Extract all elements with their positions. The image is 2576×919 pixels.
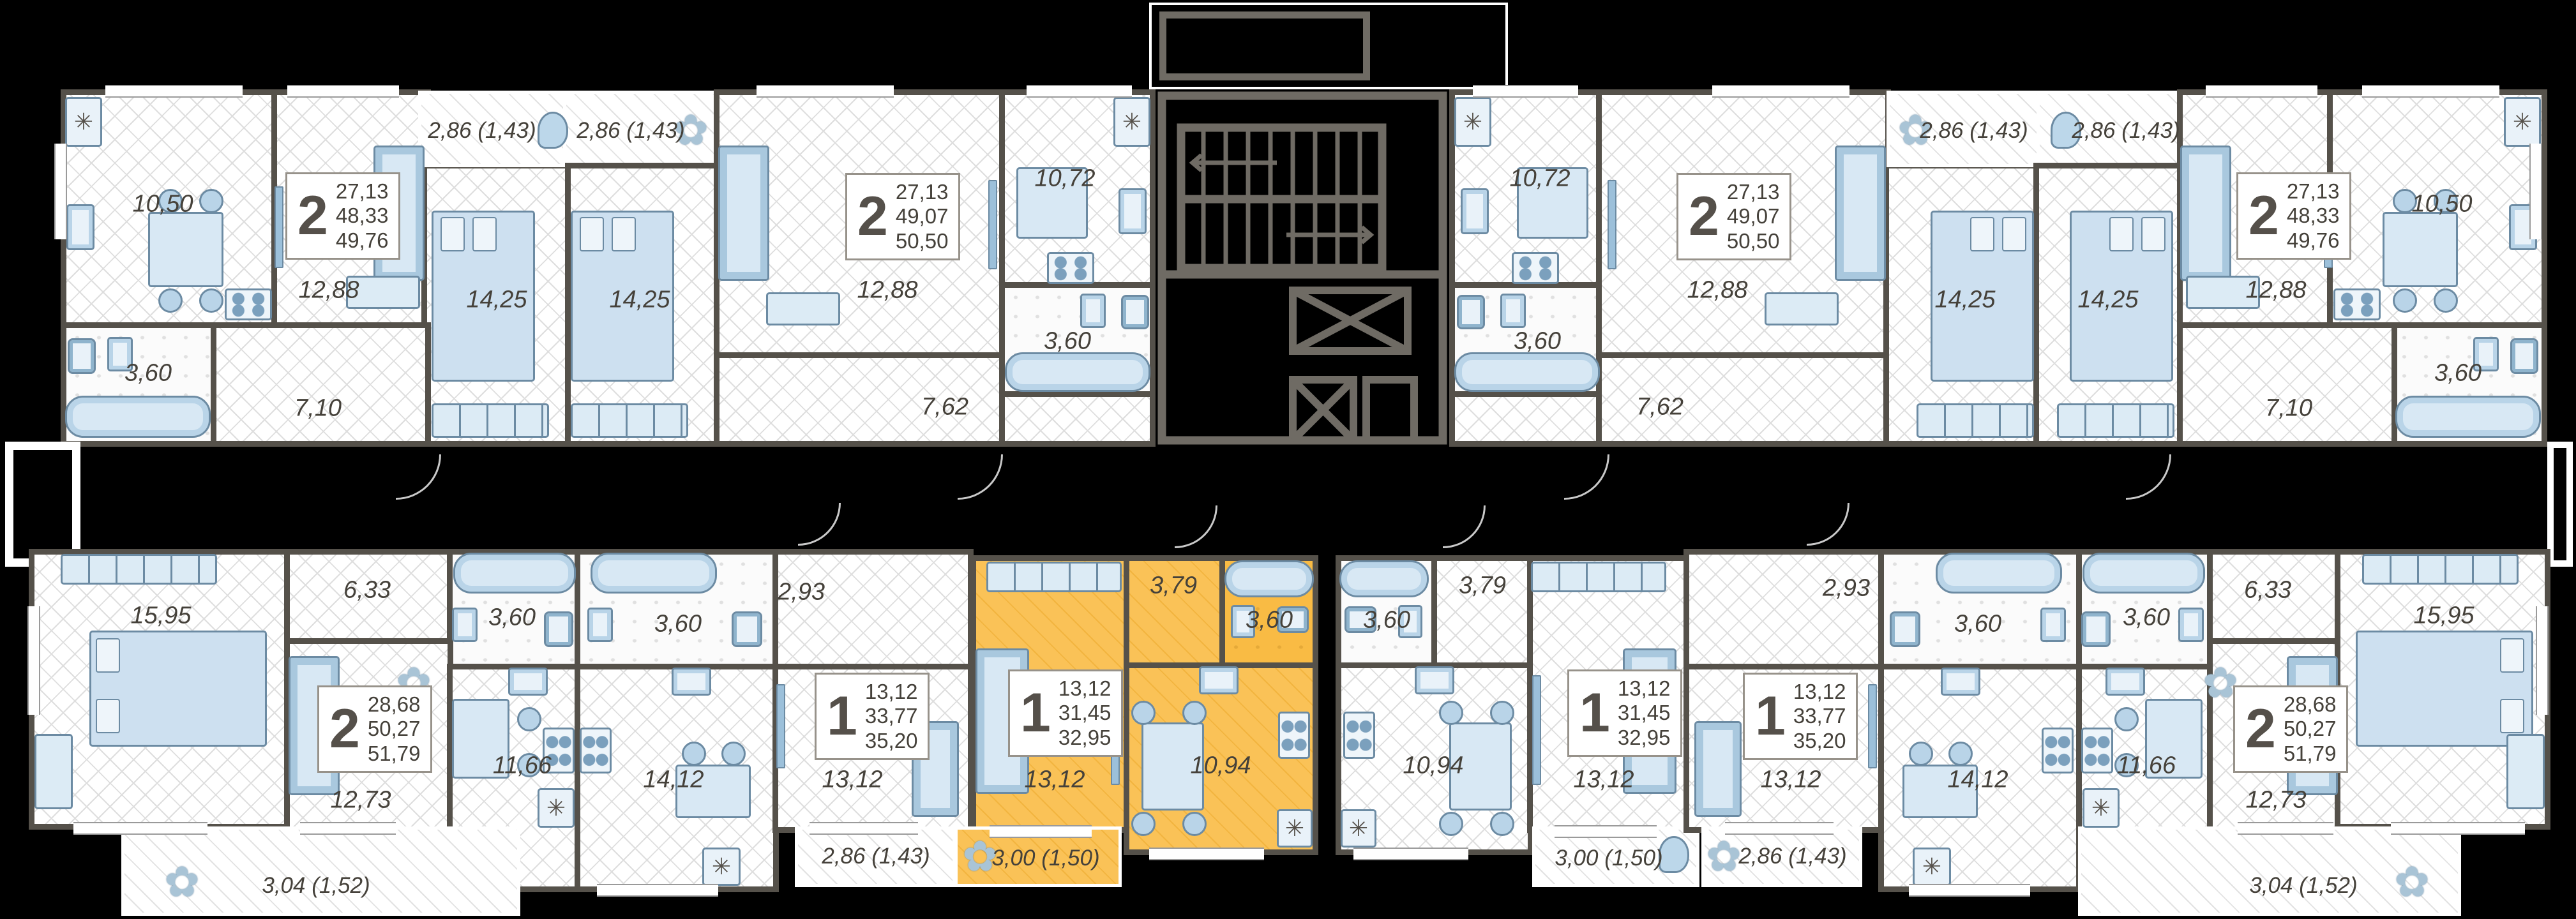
- tv-icon: [1868, 684, 1877, 768]
- area: 31,45: [1618, 701, 1671, 725]
- door-arc: [2126, 454, 2171, 500]
- shaft-box: [1366, 380, 1414, 440]
- bath-sink: [2040, 608, 2066, 642]
- stove: [2333, 288, 2381, 320]
- area: 48,33: [2287, 204, 2340, 228]
- area-label: 13,12: [822, 766, 882, 794]
- window: [990, 825, 1092, 838]
- living-area: 28,68: [368, 692, 421, 717]
- chair: [1909, 742, 1933, 766]
- chair: [2114, 707, 2139, 731]
- window: [2238, 822, 2333, 835]
- living-area: 13,12: [1793, 680, 1846, 704]
- unit-t1-hallway[interactable]: [211, 322, 431, 447]
- area-label: 15,95: [130, 602, 191, 630]
- unit-b4-card[interactable]: 1 13,1231,4532,95: [1567, 669, 1682, 757]
- wardrobe-hangers: [1531, 562, 1666, 592]
- toilet: [1121, 295, 1149, 329]
- desk: [1765, 292, 1839, 325]
- living-area: 27,13: [336, 179, 389, 204]
- window: [597, 884, 718, 897]
- kitchen-sink: [1941, 668, 1980, 696]
- wardrobe-hangers: [2057, 403, 2174, 438]
- area-label: 3,60: [1514, 328, 1561, 355]
- total-area: 35,20: [1793, 729, 1846, 753]
- toilet: [1457, 295, 1485, 329]
- area-label: 3,79: [1150, 572, 1197, 600]
- living-area: 13,12: [865, 680, 918, 704]
- window: [1712, 85, 1849, 98]
- desk: [766, 292, 840, 325]
- window: [1027, 85, 1132, 98]
- bathtub: [2083, 553, 2205, 594]
- unit-t1-card[interactable]: 2 27,1348,3349,76: [285, 172, 400, 260]
- area-label: 3,60: [2434, 360, 2482, 387]
- total-area: 50,50: [1727, 229, 1780, 253]
- area: 49,07: [896, 204, 949, 228]
- tv-icon: [275, 186, 283, 268]
- pillow: [2141, 217, 2165, 251]
- bath-sink: [1080, 294, 1106, 328]
- toilet: [2510, 338, 2538, 374]
- wardrobe-hangers: [61, 554, 217, 585]
- pillow: [2500, 699, 2524, 733]
- pillow: [441, 217, 465, 251]
- total-area: 32,95: [1618, 726, 1671, 750]
- wardrobe-hangers: [571, 403, 688, 438]
- area-label: 13,12: [1760, 766, 1821, 794]
- pillow: [612, 217, 636, 251]
- area-label: 12,73: [2245, 787, 2306, 814]
- bathtub: [453, 553, 576, 594]
- window: [1555, 825, 1657, 838]
- toilet: [544, 611, 573, 647]
- area-label: 13,12: [1573, 766, 1634, 794]
- area-label: 3,60: [2123, 604, 2170, 632]
- chair: [1439, 701, 1463, 725]
- unit-t2-hallway-2[interactable]: [999, 391, 1156, 447]
- area-label: 10,50: [2411, 191, 2472, 218]
- area-label: 15,95: [2413, 602, 2474, 630]
- unit-t3-hallway-2[interactable]: [1449, 391, 1606, 447]
- plant-icon: ✿: [1706, 832, 1741, 881]
- living-area: 27,13: [896, 180, 949, 204]
- unit-t4-hallway[interactable]: [2177, 322, 2397, 447]
- pillow: [472, 217, 497, 251]
- living-area: 27,13: [1727, 180, 1780, 204]
- balcony-label: 2,86 (1,43): [428, 118, 536, 144]
- window: [2529, 144, 2542, 239]
- dining-table: [2383, 212, 2458, 287]
- balcony-label: 2,86 (1,43): [2072, 118, 2180, 144]
- toilet: [68, 338, 96, 374]
- core-bulkhead-inner: [1159, 11, 1370, 80]
- rooms-count: 2: [2248, 191, 2279, 241]
- chair: [1182, 701, 1207, 725]
- door-arc: [1443, 505, 1486, 548]
- chair: [199, 288, 223, 313]
- rooms-count: 2: [329, 705, 360, 754]
- area-label: 11,66: [2117, 752, 2176, 780]
- unit-b1-card[interactable]: 2 28,6850,2751,79: [317, 685, 432, 773]
- wardrobe-hangers: [432, 403, 549, 438]
- area-label: 10,94: [1403, 752, 1463, 780]
- chair: [682, 742, 706, 766]
- window: [73, 822, 207, 835]
- fridge-icon: ✳: [1341, 809, 1376, 848]
- tv-icon: [1532, 675, 1541, 785]
- area-label: 3,79: [1459, 572, 1506, 600]
- area-label: 10,50: [132, 191, 193, 218]
- balcony-chair-icon: [1659, 836, 1689, 873]
- sofa: [1694, 721, 1742, 817]
- unit-t2-card[interactable]: 2 27,1349,0750,50: [845, 173, 960, 260]
- area: 33,77: [1793, 704, 1846, 728]
- area-label: 3,60: [1363, 607, 1410, 634]
- sofa: [718, 146, 769, 281]
- window: [810, 822, 918, 835]
- area-label: 12,88: [1687, 277, 1747, 304]
- area-label: 11,66: [493, 752, 552, 780]
- chair: [721, 742, 746, 766]
- area-label: 3,60: [1246, 607, 1293, 634]
- window: [1909, 884, 2030, 897]
- desk: [34, 734, 73, 809]
- stove: [580, 728, 612, 773]
- unit-b3-card[interactable]: 1 13,1231,4532,95: [1008, 669, 1123, 757]
- bathtub: [1339, 560, 1429, 597]
- chair: [1490, 701, 1514, 725]
- area-label: 3,60: [488, 604, 536, 632]
- balcony-label: 3,04 (1,52): [262, 873, 370, 899]
- fridge-icon: ✳: [2083, 788, 2120, 828]
- fridge-icon: ✳: [1277, 809, 1313, 848]
- chair: [1131, 812, 1156, 836]
- total-area: 51,79: [368, 742, 421, 766]
- area-label: 14,12: [1947, 766, 2008, 794]
- fridge-icon: ✳: [65, 97, 102, 147]
- area: 31,45: [1058, 701, 1111, 725]
- door-arc: [1175, 505, 1217, 548]
- stove: [1278, 712, 1310, 759]
- area-label: 12,88: [298, 277, 359, 304]
- area-label: 7,10: [2265, 395, 2312, 422]
- core-drawing: [1156, 89, 1449, 447]
- area-label: 3,60: [1044, 328, 1091, 355]
- total-area: 35,20: [865, 729, 918, 753]
- total-area: 50,50: [896, 229, 949, 253]
- total-area: 49,76: [2287, 228, 2340, 253]
- rooms-count: 1: [1020, 689, 1051, 738]
- unit-b5-hallway[interactable]: [1683, 549, 1885, 670]
- plant-icon: ✿: [164, 858, 199, 907]
- balcony-label: 2,86 (1,43): [822, 844, 930, 869]
- bath-sink: [1500, 294, 1526, 328]
- area-label: 12,73: [330, 787, 391, 814]
- chair: [2434, 288, 2458, 313]
- pillow: [1970, 217, 1994, 251]
- area-label: 10,94: [1190, 752, 1251, 780]
- balcony-label: 2,86 (1,43): [576, 118, 684, 144]
- pillow: [580, 217, 604, 251]
- pillow: [96, 638, 120, 673]
- stove: [1343, 712, 1375, 759]
- kitchen-sink: [508, 668, 548, 696]
- total-area: 32,95: [1058, 726, 1111, 750]
- stove: [225, 288, 272, 320]
- bath-sink: [2178, 608, 2204, 642]
- balcony-chair-icon: [538, 112, 568, 149]
- dining-table: [148, 212, 223, 287]
- area: 49,07: [1727, 204, 1780, 228]
- tv-icon: [988, 180, 997, 269]
- fridge-icon: ✳: [538, 788, 575, 828]
- chair: [158, 288, 183, 313]
- building-core: [1156, 89, 1449, 447]
- living-area: 27,13: [2287, 179, 2340, 204]
- window: [54, 144, 67, 239]
- window: [105, 85, 243, 98]
- stove: [2081, 728, 2113, 773]
- kitchen-sink: [1199, 666, 1239, 694]
- total-area: 51,79: [2284, 742, 2337, 766]
- area-label: 14,25: [2077, 287, 2138, 314]
- fridge-icon: ✳: [1113, 97, 1150, 147]
- unit-t3-card[interactable]: 2 27,1349,0750,50: [1676, 173, 1791, 260]
- fridge-icon: ✳: [702, 848, 741, 886]
- balcony-label: 2,86 (1,43): [1920, 118, 2028, 144]
- area-label: 14,25: [466, 287, 527, 314]
- unit-t4-card[interactable]: 2 27,1348,3349,76: [2236, 172, 2351, 260]
- sofa: [1835, 146, 1886, 281]
- area-label: 2,93: [1823, 575, 1870, 602]
- kitchen-sink: [66, 204, 94, 250]
- kitchen-sink: [672, 668, 711, 696]
- desk: [2506, 734, 2545, 809]
- chair: [1490, 812, 1514, 836]
- area-label: 7,62: [921, 394, 968, 421]
- kitchen-sink: [2105, 668, 2145, 696]
- area-label: 10,72: [1509, 165, 1570, 193]
- unit-b6-card[interactable]: 2 28,6850,2751,79: [2233, 685, 2348, 773]
- bathtub: [65, 396, 211, 438]
- area-label: 7,62: [1636, 394, 1683, 421]
- window: [300, 822, 396, 835]
- area-label: 3,60: [124, 360, 172, 387]
- area-label: 14,25: [609, 287, 670, 314]
- door-arc: [958, 454, 1003, 500]
- balcony-label: 2,86 (1,43): [1738, 844, 1846, 869]
- area-label: 3,60: [1954, 611, 2001, 638]
- tv-icon: [776, 684, 785, 768]
- area: 50,27: [368, 717, 421, 741]
- total-area: 49,76: [336, 228, 389, 253]
- bathtub: [591, 553, 717, 594]
- tv-icon: [1608, 180, 1616, 269]
- window: [1149, 848, 1264, 860]
- fridge-icon: ✳: [2504, 97, 2541, 147]
- kitchen-sink: [1119, 188, 1147, 234]
- kitchen-sink: [1415, 666, 1454, 694]
- balcony-label: 3,04 (1,52): [2249, 873, 2357, 899]
- bathtub: [1454, 352, 1600, 392]
- chair: [1131, 701, 1156, 725]
- window: [27, 606, 40, 715]
- unit-b2-hallway[interactable]: [772, 549, 974, 670]
- wardrobe-hangers: [986, 562, 1122, 592]
- chair: [1439, 812, 1463, 836]
- door-arc: [396, 454, 441, 500]
- floor-plan: 2 27,1348,3349,76 2 27,1349,0750,50 2 27…: [0, 0, 2576, 919]
- fridge-icon: ✳: [1454, 97, 1491, 147]
- rooms-count: 2: [298, 191, 328, 241]
- chair: [2393, 288, 2417, 313]
- toilet: [732, 611, 762, 647]
- rooms-count: 1: [1579, 689, 1610, 738]
- stove: [1512, 252, 1559, 284]
- living-area: 13,12: [1058, 676, 1111, 701]
- living-area: 28,68: [2284, 692, 2337, 717]
- door-arc: [798, 503, 841, 546]
- sofa: [2180, 146, 2231, 281]
- balcony-label: 3,00 (1,50): [991, 846, 1099, 871]
- bath-sink: [587, 608, 613, 642]
- pillow: [2500, 638, 2524, 673]
- door-arc: [1807, 503, 1849, 546]
- wardrobe-hangers: [2362, 554, 2519, 585]
- area: 33,77: [865, 704, 918, 728]
- rooms-count: 2: [1689, 192, 1719, 241]
- plant-icon: ✿: [2394, 858, 2429, 907]
- bathtub: [1005, 352, 1150, 392]
- area-label: 7,10: [294, 395, 342, 422]
- chair: [1182, 812, 1207, 836]
- area: 48,33: [336, 204, 389, 228]
- door-arc: [1564, 454, 1609, 500]
- right-escape-balcony: [2547, 442, 2573, 567]
- area-label: 13,12: [1024, 766, 1085, 794]
- area-label: 6,33: [2244, 577, 2291, 604]
- pillow: [96, 699, 120, 733]
- window: [757, 85, 894, 98]
- area: 50,27: [2284, 717, 2337, 741]
- area-label: 12,88: [2245, 277, 2306, 304]
- unit-b2-card[interactable]: 1 13,1233,7735,20: [815, 673, 930, 760]
- unit-b5-card[interactable]: 1 13,1233,7735,20: [1743, 673, 1858, 760]
- rooms-count: 2: [857, 192, 888, 241]
- area-label: 10,72: [1034, 165, 1095, 193]
- area-label: 14,25: [1934, 287, 1995, 314]
- bathtub: [1224, 560, 1314, 597]
- bathtub: [2395, 396, 2541, 438]
- rooms-count: 1: [1755, 692, 1786, 741]
- rooms-count: 1: [827, 692, 857, 741]
- toilet: [2081, 611, 2111, 647]
- bathtub: [1936, 553, 2062, 594]
- window: [2391, 822, 2525, 835]
- pillow: [2002, 217, 2026, 251]
- living-area: 13,12: [1618, 676, 1671, 701]
- stove: [1047, 252, 1094, 284]
- area-label: 3,60: [654, 611, 702, 638]
- window: [2206, 85, 2317, 98]
- fridge-icon: ✳: [1913, 848, 1951, 886]
- area-label: 14,12: [643, 766, 704, 794]
- window: [2536, 606, 2549, 715]
- chair: [199, 189, 223, 213]
- toilet: [1890, 611, 1920, 647]
- area-label: 12,88: [857, 277, 917, 304]
- left-escape-balcony: [5, 442, 80, 567]
- bath-sink: [452, 608, 478, 642]
- window: [1473, 85, 1578, 98]
- area-label: 6,33: [343, 577, 391, 604]
- window: [287, 85, 399, 98]
- chair: [517, 707, 541, 731]
- stove: [2042, 728, 2074, 773]
- rooms-count: 2: [2245, 705, 2276, 754]
- window: [1353, 848, 1468, 860]
- chair: [1948, 742, 1973, 766]
- balcony-label: 3,00 (1,50): [1555, 846, 1662, 871]
- area-label: 2,93: [778, 579, 825, 606]
- kitchen-sink: [1461, 188, 1489, 234]
- wardrobe-hangers: [1917, 403, 2034, 438]
- window: [2362, 85, 2499, 98]
- pillow: [2109, 217, 2134, 251]
